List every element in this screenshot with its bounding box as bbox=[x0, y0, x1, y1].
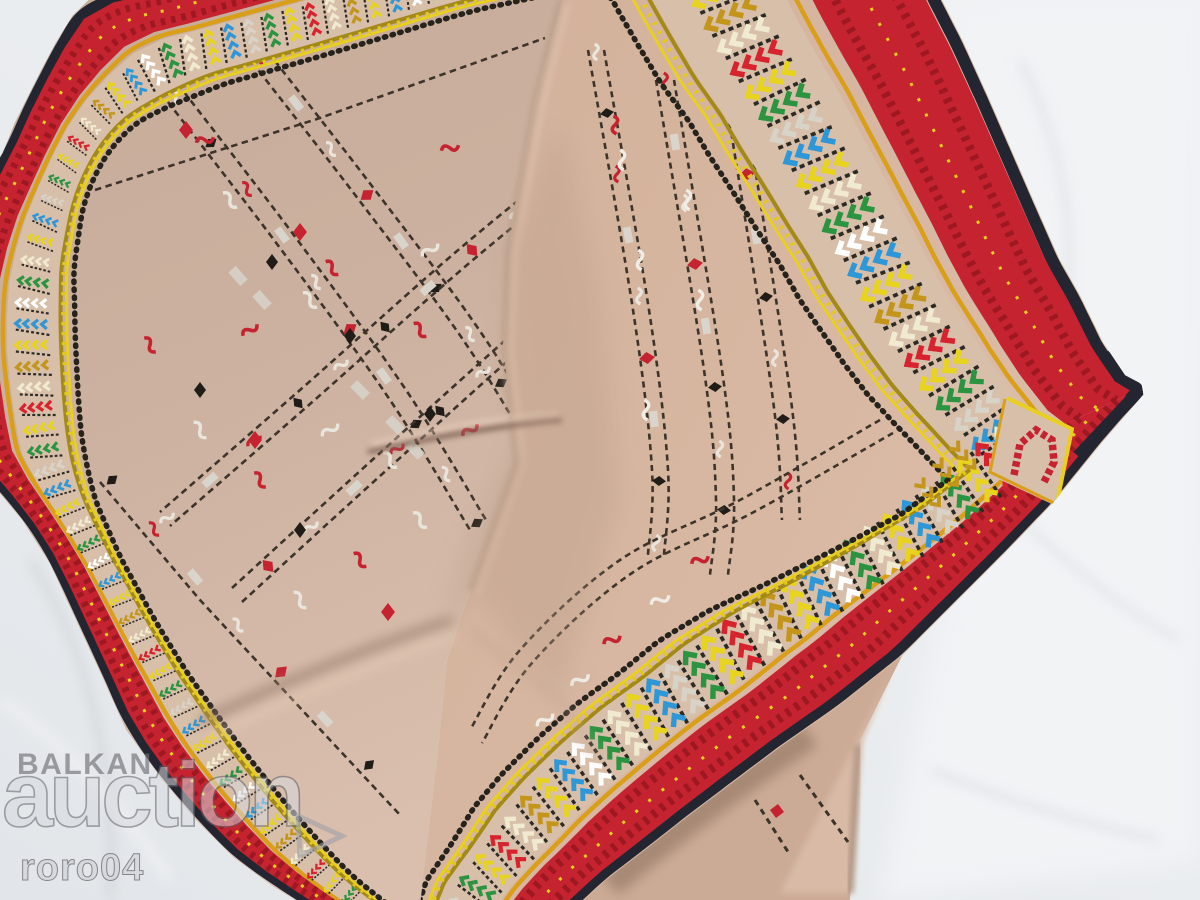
svg-text:auction: auction bbox=[2, 744, 301, 846]
svg-text:roro04: roro04 bbox=[20, 847, 144, 889]
